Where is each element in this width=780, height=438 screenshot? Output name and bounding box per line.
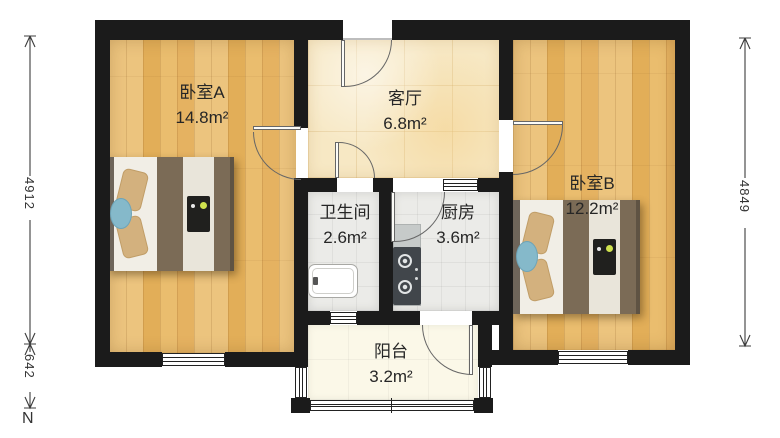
balcony-label: 阳台 3.2m² — [369, 339, 412, 389]
dimension-left-lower: 642 — [22, 354, 37, 379]
bedside-stool — [110, 198, 132, 229]
kitchen-label: 厨房 3.6m² — [436, 200, 479, 250]
wall-segment — [675, 20, 690, 365]
wall-segment — [95, 20, 343, 40]
bedroom-b-window — [558, 351, 628, 364]
bedroom-a-label: 卧室A 14.8m² — [176, 80, 229, 130]
room-area: 14.8m² — [176, 105, 229, 130]
tray-small-dot — [191, 204, 195, 208]
kitchen-door-leaf — [391, 192, 395, 242]
room-area: 6.8m² — [383, 111, 426, 136]
bathroom-door-leaf — [335, 142, 339, 178]
bedroom-a-bed — [107, 157, 234, 271]
bedroom-a-window — [162, 353, 225, 366]
bed-tray — [593, 239, 616, 275]
wall-segment — [294, 178, 337, 192]
dimension-right: 4849 — [737, 180, 752, 213]
bathtub — [308, 264, 358, 298]
room-area: 3.6m² — [436, 225, 479, 250]
wall-segment — [357, 311, 420, 325]
bedroom-a-door-leaf — [253, 126, 301, 130]
north-label: N — [22, 410, 34, 428]
bathtub-faucet — [313, 277, 318, 285]
room-name: 客厅 — [383, 86, 426, 111]
stove-knob — [415, 277, 418, 280]
balcony-railing-window — [310, 400, 474, 411]
room-name: 卧室A — [176, 80, 229, 105]
wall-segment — [294, 311, 308, 367]
tray-lamp-dot — [606, 245, 613, 252]
balcony-door-leaf — [469, 325, 473, 375]
wall-segment — [392, 20, 690, 40]
bed-tray — [187, 196, 210, 232]
room-area: 2.6m² — [320, 225, 371, 250]
wall-segment — [294, 40, 308, 128]
balcony-left-window — [295, 367, 307, 398]
bedroom-b-label: 卧室B 12.2m² — [566, 171, 619, 221]
railing-center-tick — [391, 398, 392, 413]
stove-burner — [398, 254, 412, 268]
wall-segment — [478, 311, 492, 367]
wall-segment — [499, 40, 513, 120]
balcony-post — [474, 398, 493, 413]
tray-small-dot — [597, 247, 601, 251]
kitchen-pass-window — [443, 179, 478, 191]
stove-burner — [398, 280, 412, 294]
balcony-post — [291, 398, 310, 413]
wall-segment — [628, 350, 690, 365]
room-name: 阳台 — [369, 339, 412, 364]
balcony-right-window — [479, 367, 491, 398]
room-area: 3.2m² — [369, 364, 412, 389]
wall-segment — [95, 20, 110, 367]
living-room-label: 客厅 6.8m² — [383, 86, 426, 136]
entry-door-leaf — [341, 40, 345, 87]
tray-lamp-dot — [200, 202, 207, 209]
bathtub-inner — [312, 268, 354, 294]
dimension-left-upper: 4912 — [22, 177, 37, 210]
dimension-line-left — [24, 36, 36, 408]
entry-threshold — [343, 38, 392, 40]
bathroom-label: 卫生间 2.6m² — [320, 200, 371, 250]
room-name: 卫生间 — [320, 200, 371, 225]
bedside-stool — [516, 241, 538, 272]
bedroom-b-door-leaf — [513, 121, 563, 125]
room-area: 12.2m² — [566, 196, 619, 221]
floor-plan: 卧室A 14.8m² 客厅 6.8m² 卧室B 12.2m² 卫生间 2.6m²… — [0, 0, 780, 438]
bathroom-window — [330, 312, 357, 324]
room-name: 卧室B — [566, 171, 619, 196]
wall-segment — [95, 352, 162, 367]
stove-knob — [415, 268, 418, 271]
gas-stove — [393, 247, 421, 305]
room-name: 厨房 — [436, 200, 479, 225]
